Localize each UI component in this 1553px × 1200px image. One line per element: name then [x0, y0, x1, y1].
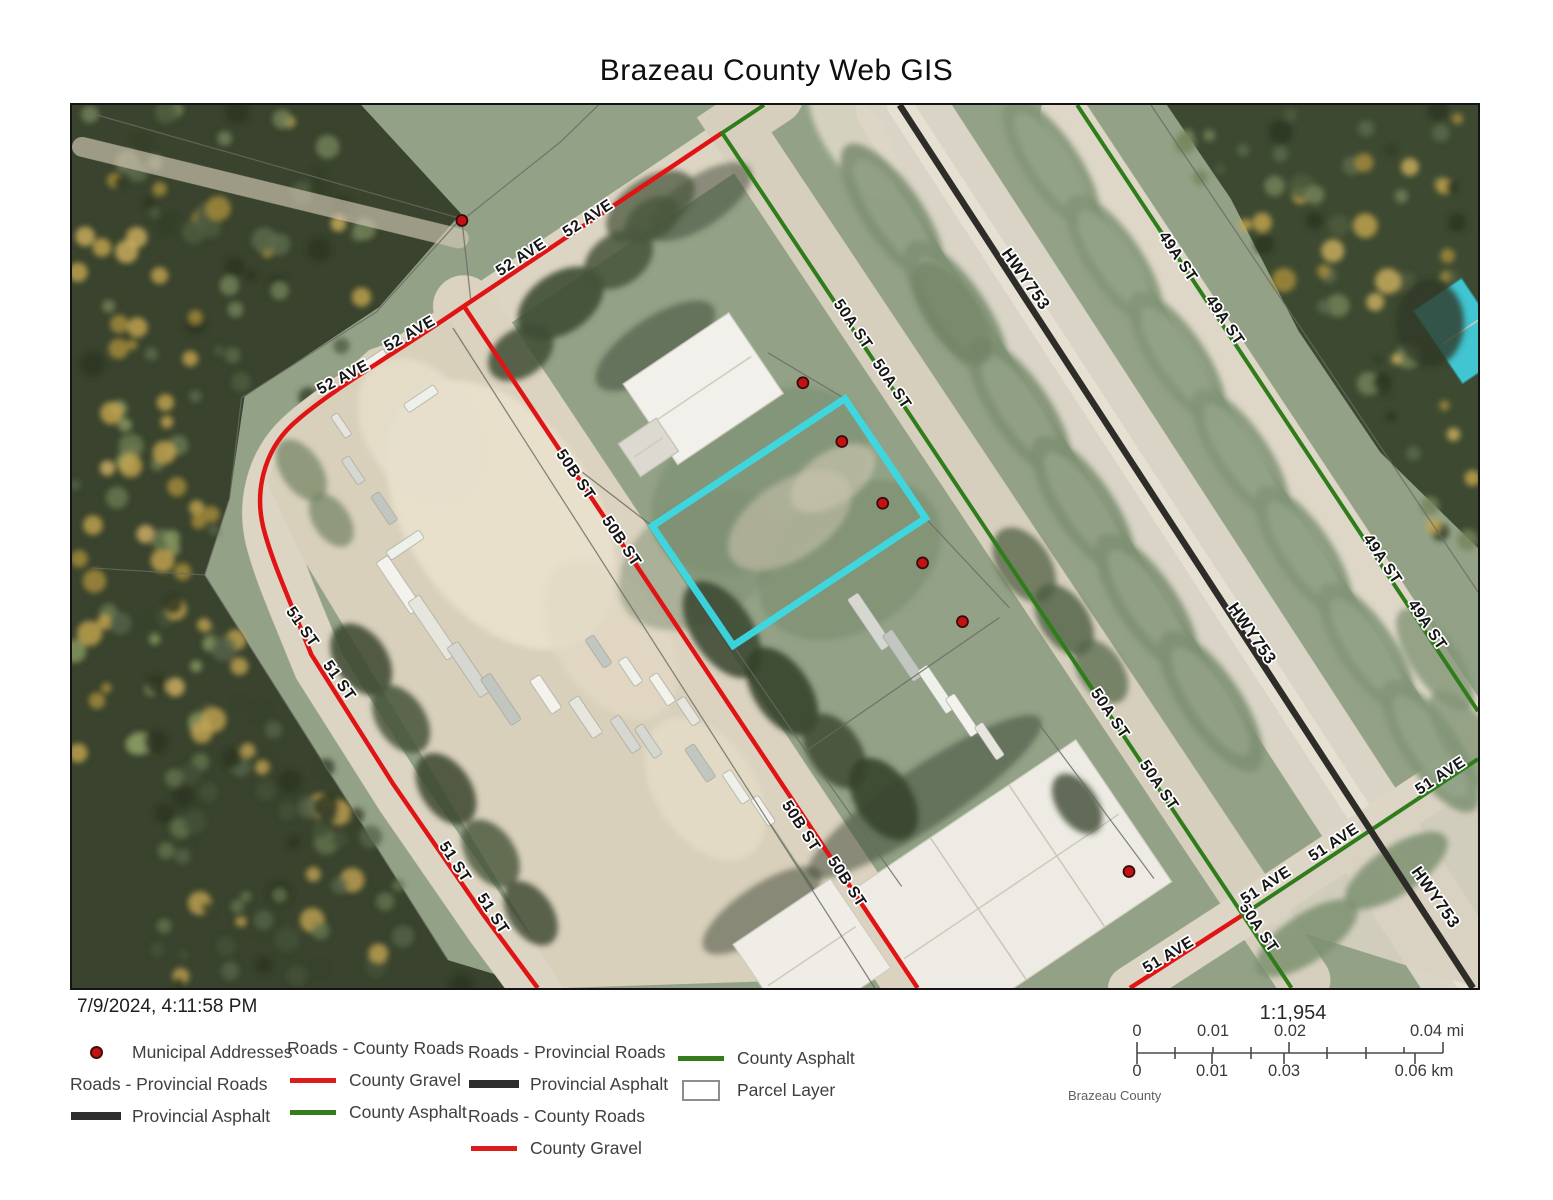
- legend-item-provincial-asphalt: Provincial Asphalt: [70, 1100, 293, 1132]
- map-attribution: Brazeau County: [1068, 1088, 1161, 1103]
- legend-item-county-asphalt: County Asphalt: [675, 1042, 855, 1074]
- legend-swatch-icon: [675, 1080, 727, 1101]
- municipal-address-dot[interactable]: [877, 498, 888, 509]
- legend-item-parcel-layer: Parcel Layer: [675, 1074, 855, 1106]
- legend-label: County Asphalt: [737, 1048, 855, 1069]
- map-canvas[interactable]: 52 AVE52 AVE52 AVE52 AVE50B ST50B ST50B …: [72, 105, 1478, 988]
- legend-swatch-icon: [70, 1046, 122, 1059]
- legend-label: Parcel Layer: [737, 1080, 835, 1101]
- municipal-address-dot[interactable]: [456, 215, 467, 226]
- legend-group-header: Roads - Provincial Roads: [468, 1036, 668, 1068]
- legend-swatch-icon: [287, 1110, 339, 1115]
- legend-group-header: Roads - County Roads: [468, 1100, 668, 1132]
- legend-label: County Gravel: [349, 1070, 461, 1091]
- legend-column: Municipal AddressesRoads - Provincial Ro…: [70, 1036, 293, 1132]
- scale-ruler: [1120, 1040, 1480, 1068]
- legend-column: Roads - County RoadsCounty GravelCounty …: [287, 1032, 467, 1128]
- page-title: Brazeau County Web GIS: [0, 54, 1553, 88]
- legend-item-county-gravel: County Gravel: [287, 1064, 467, 1096]
- municipal-address-dot[interactable]: [957, 616, 968, 627]
- scale-mi-label: 0.04 mi: [1410, 1022, 1464, 1041]
- legend-label: County Asphalt: [349, 1102, 467, 1123]
- legend-swatch-icon: [287, 1078, 339, 1083]
- municipal-address-dot[interactable]: [917, 557, 928, 568]
- legend-label: Provincial Asphalt: [530, 1074, 668, 1095]
- scale-mi-label: 0.02: [1274, 1022, 1306, 1041]
- municipal-address-dot[interactable]: [836, 436, 847, 447]
- legend: Municipal AddressesRoads - Provincial Ro…: [0, 1032, 1060, 1162]
- legend-label: Provincial Asphalt: [132, 1106, 270, 1127]
- scale-mi-label: 0: [1132, 1022, 1141, 1041]
- legend-label: Roads - County Roads: [287, 1038, 464, 1059]
- legend-label: County Gravel: [530, 1138, 642, 1159]
- municipal-address-dot[interactable]: [1124, 866, 1135, 877]
- legend-item-county-gravel: County Gravel: [468, 1132, 668, 1164]
- legend-swatch-icon: [468, 1080, 520, 1088]
- scale-mi-label: 0.01: [1197, 1022, 1229, 1041]
- legend-item-county-asphalt: County Asphalt: [287, 1096, 467, 1128]
- legend-label: Roads - Provincial Roads: [70, 1074, 267, 1095]
- legend-swatch-icon: [675, 1056, 727, 1061]
- legend-label: Roads - Provincial Roads: [468, 1042, 665, 1063]
- legend-swatch-icon: [468, 1146, 520, 1151]
- legend-group-header: Roads - Provincial Roads: [70, 1068, 293, 1100]
- legend-label: Municipal Addresses: [132, 1042, 293, 1063]
- map-frame[interactable]: 52 AVE52 AVE52 AVE52 AVE50B ST50B ST50B …: [70, 103, 1480, 990]
- timestamp: 7/9/2024, 4:11:58 PM: [77, 996, 257, 1018]
- legend-item-municipal-addresses: Municipal Addresses: [70, 1036, 293, 1068]
- legend-group-header: Roads - County Roads: [287, 1032, 467, 1064]
- legend-item-provincial-asphalt: Provincial Asphalt: [468, 1068, 668, 1100]
- legend-swatch-icon: [70, 1112, 122, 1120]
- legend-label: Roads - County Roads: [468, 1106, 645, 1127]
- legend-column: Roads - Provincial RoadsProvincial Aspha…: [468, 1036, 668, 1164]
- municipal-address-dot[interactable]: [797, 377, 808, 388]
- legend-column: County AsphaltParcel Layer: [675, 1042, 855, 1106]
